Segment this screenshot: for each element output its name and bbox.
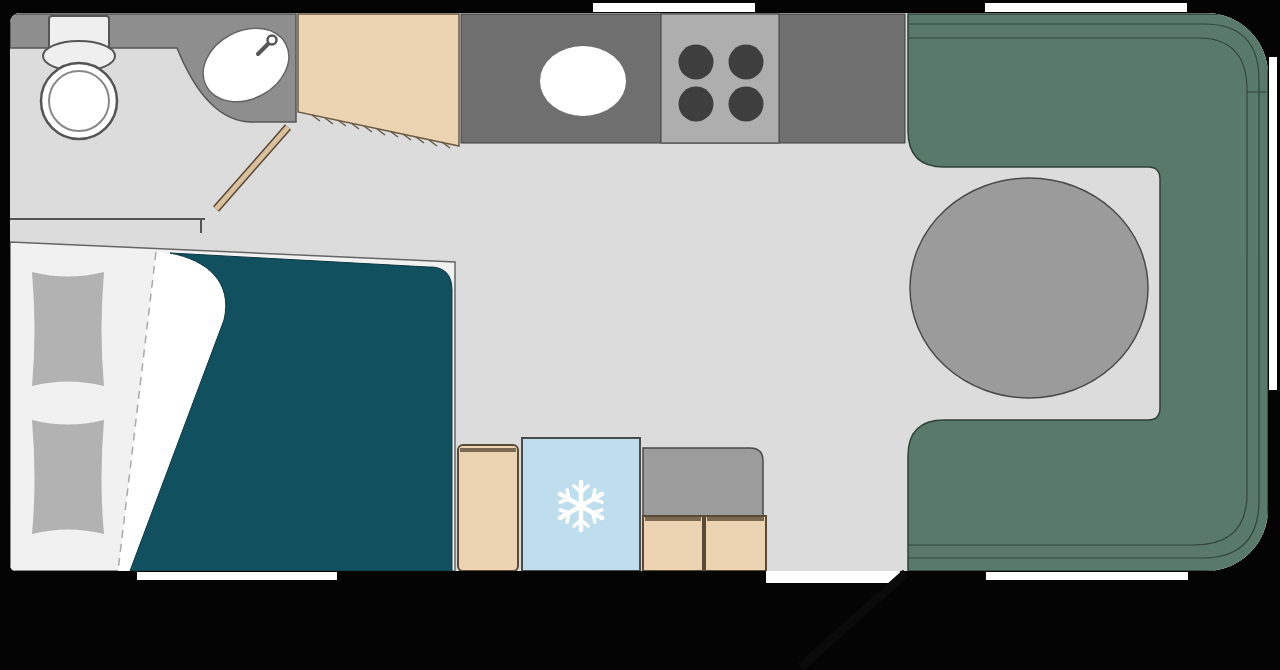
drawer xyxy=(705,516,766,571)
entry-door-leaf xyxy=(801,573,906,667)
pillow xyxy=(32,272,104,386)
drawer xyxy=(643,516,703,571)
pillow xyxy=(32,420,104,534)
worktop-unit xyxy=(643,448,763,516)
kitchen-sink xyxy=(540,46,626,116)
base-cabinet xyxy=(458,445,518,571)
floorplan-canvas xyxy=(0,0,1280,670)
floorplan-drawing xyxy=(10,13,1268,571)
window xyxy=(137,572,337,580)
window xyxy=(1269,57,1277,390)
entry-door-opening xyxy=(766,571,900,583)
toilet-bowl xyxy=(41,63,117,139)
window xyxy=(986,572,1188,580)
hob xyxy=(661,14,779,143)
lounge-table xyxy=(910,178,1148,398)
window xyxy=(593,3,755,12)
window xyxy=(985,3,1187,12)
caravan-interior xyxy=(10,13,1268,571)
